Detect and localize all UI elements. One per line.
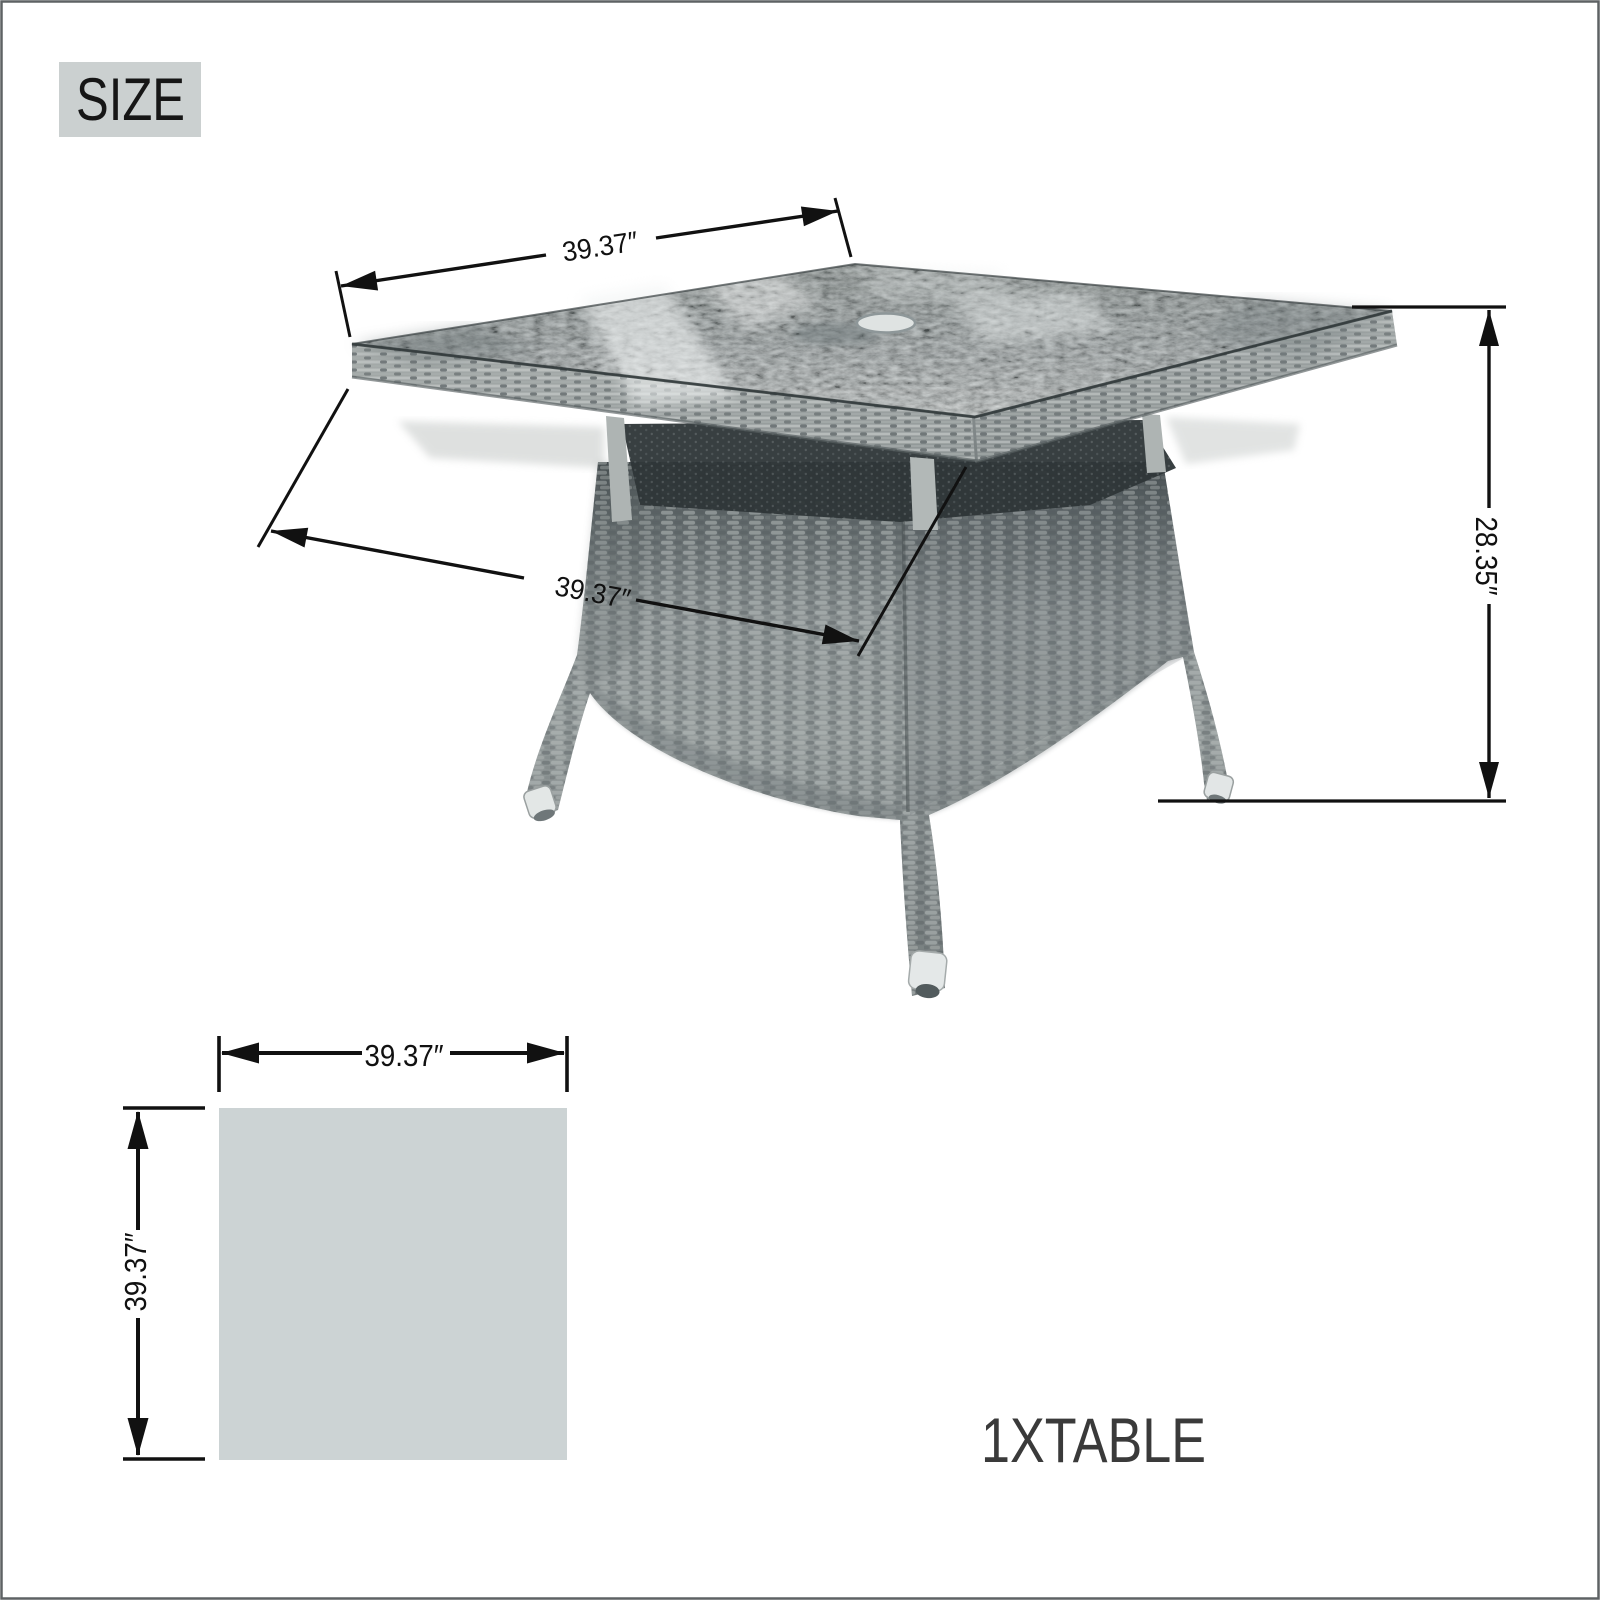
svg-text:SIZE: SIZE (76, 66, 185, 133)
svg-text:39.37″: 39.37″ (365, 1038, 444, 1073)
svg-text:39.37″: 39.37″ (118, 1232, 153, 1311)
svg-text:1XTABLE: 1XTABLE (981, 1406, 1206, 1476)
svg-text:28.35″: 28.35″ (1469, 517, 1504, 596)
